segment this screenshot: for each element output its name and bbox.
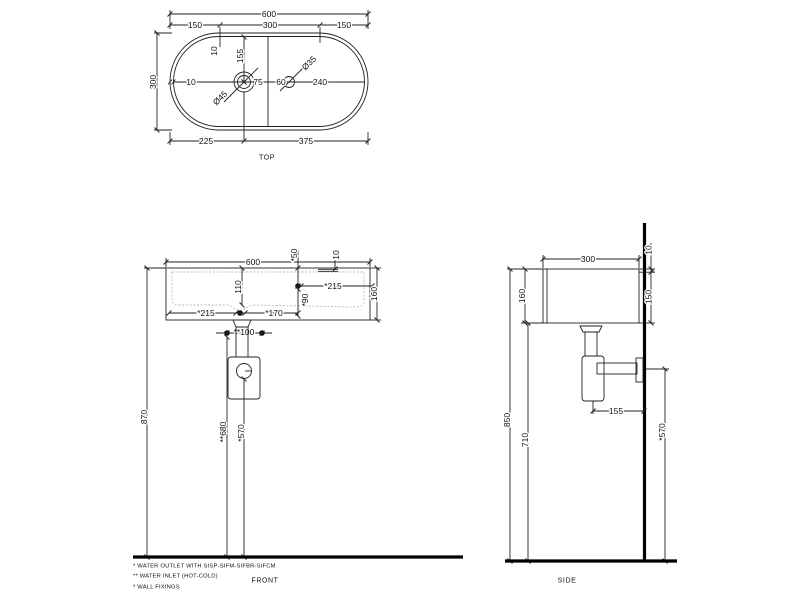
top-view: 600 150 300 150 10 300 xyxy=(148,9,368,162)
dim-top-overall-width: 600 xyxy=(262,9,276,19)
side-dim-depth: 300 xyxy=(543,254,639,268)
dim-side-rim-height: 850 xyxy=(502,413,512,427)
dim-trap-to-wall: 155 xyxy=(609,406,623,416)
note-wall-fixings: * WALL FIXINGS xyxy=(133,585,180,591)
dim-rear-rim: 10 xyxy=(644,245,654,255)
dim-inlet-spacing: **100 xyxy=(234,327,255,337)
dim-drain-to-right: 375 xyxy=(299,136,313,146)
front-dim-taphole: *50 10 *215 *90 xyxy=(289,248,372,316)
dim-top-rim-left: 10 xyxy=(186,77,196,87)
basin-outline-top xyxy=(170,33,368,130)
top-dim-bottom: 225 375 xyxy=(170,92,368,146)
side-view: 300 10 150 160 850 710 xyxy=(502,223,677,585)
dim-front-height: 160 xyxy=(369,287,379,301)
dim-overflow-from-top: 10 xyxy=(331,250,341,260)
dim-side-outlet-height: *570 xyxy=(657,423,667,441)
dim-rim-height: 870 xyxy=(139,410,149,424)
dim-taphole-to-right: *215 xyxy=(324,281,342,291)
front-dim-bowl-depth: 110 xyxy=(233,268,243,305)
front-dim-height: 160 xyxy=(369,268,381,320)
dim-front-width: 600 xyxy=(246,257,260,267)
note-water-outlet: * WATER OUTLET WITH SISP-SIFM-SIFBR-SIFC… xyxy=(133,564,276,570)
front-view: 600 *50 10 *215 *90 110 xyxy=(133,248,463,584)
side-dim-front-heights: 160 850 710 xyxy=(502,269,543,561)
side-dim-outlet: *570 xyxy=(646,369,669,561)
basin-dimension-drawing: 600 150 300 150 10 300 xyxy=(0,0,800,600)
dim-top-left-segment: 150 xyxy=(188,20,202,30)
dim-taphole-from-bottom: *90 xyxy=(300,293,310,306)
dim-drain-to-divider: 75 xyxy=(253,77,263,87)
dim-rear-height: 150 xyxy=(644,290,654,304)
dim-taphole-diameter: Ø35 xyxy=(300,54,319,73)
dim-divider-to-taphole: 60 xyxy=(276,77,286,87)
dim-underside-height: 710 xyxy=(520,433,530,447)
top-dim-segments: 150 300 150 10 xyxy=(170,20,368,56)
dim-top-right-segment: 150 xyxy=(337,20,351,30)
dim-taphole-to-right: 240 xyxy=(313,77,327,87)
front-dim-drain: *215 *170 xyxy=(169,308,298,318)
note-water-inlet: ** WATER INLET (HOT-COLD) xyxy=(133,574,218,580)
front-dim-heights-floor: 870 **680 *570 xyxy=(139,268,246,557)
water-inlet-markers: **100 xyxy=(216,327,272,337)
side-dim-trap: 155 xyxy=(593,401,644,416)
basin-outline-side xyxy=(543,269,639,323)
dim-taphole-from-top: *50 xyxy=(289,248,299,261)
dim-top-rim-offset: 10 xyxy=(209,46,219,56)
side-view-caption: SIDE xyxy=(558,578,577,585)
dim-left-to-drain: 225 xyxy=(199,136,213,146)
dim-top-drain-from-top: 155 xyxy=(235,49,245,63)
dim-drain-diameter: Ø45 xyxy=(211,89,230,108)
top-view-caption: TOP xyxy=(259,155,275,162)
dim-drain-to-taphole: *170 xyxy=(265,308,283,318)
top-dim-depth: 300 xyxy=(148,33,172,130)
dim-bowl-depth: 110 xyxy=(233,280,243,294)
dim-top-depth: 300 xyxy=(148,75,158,89)
dim-top-center-segment: 300 xyxy=(263,20,277,30)
dim-side-depth: 300 xyxy=(581,254,595,264)
dim-outlet-height: *570 xyxy=(236,424,246,442)
side-dim-rear: 10 150 xyxy=(639,243,655,323)
technical-drawing-canvas: 600 150 300 150 10 300 xyxy=(0,0,800,600)
dim-inlet-height: **680 xyxy=(218,421,228,442)
dim-side-front-height: 160 xyxy=(517,289,527,303)
dim-left-to-drain-front: *215 xyxy=(197,308,215,318)
bottle-trap-side xyxy=(580,326,643,401)
front-view-caption: FRONT xyxy=(251,578,278,585)
